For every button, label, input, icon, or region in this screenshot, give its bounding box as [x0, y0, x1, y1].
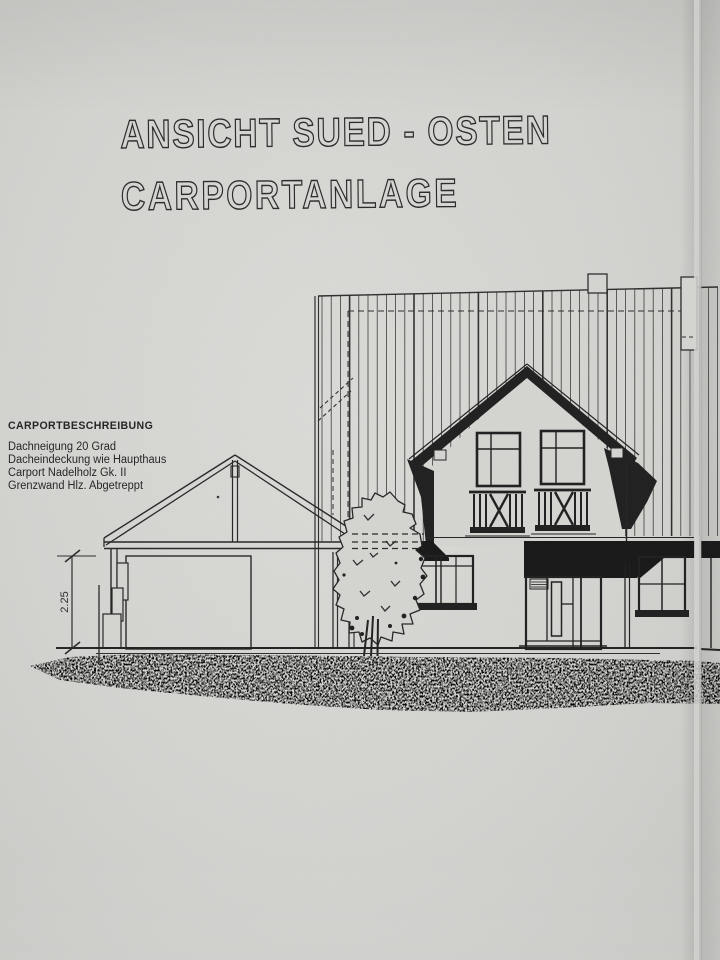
carport-description-block: CARPORTBESCHREIBUNG Dachneigung 20 Grad … [8, 420, 166, 493]
drawing-sheet: 2.25 ANSICHT SUED - OSTEN CARPORTANLAGE … [0, 0, 720, 960]
description-line: Dacheindeckung wie Haupthaus [8, 454, 166, 467]
title-line-2: CARPORTANLAGE [121, 161, 592, 228]
description-line: Carport Nadelholz Gk. II [8, 467, 166, 480]
drawing-title: ANSICHT SUED - OSTEN CARPORTANLAGE [120, 99, 592, 228]
description-line: Dachneigung 20 Grad [8, 441, 166, 454]
description-line: Grenzwand Hlz. Abgetreppt [8, 480, 166, 493]
description-heading: CARPORTBESCHREIBUNG [8, 420, 166, 432]
title-line-1: ANSICHT SUED - OSTEN [120, 99, 591, 166]
